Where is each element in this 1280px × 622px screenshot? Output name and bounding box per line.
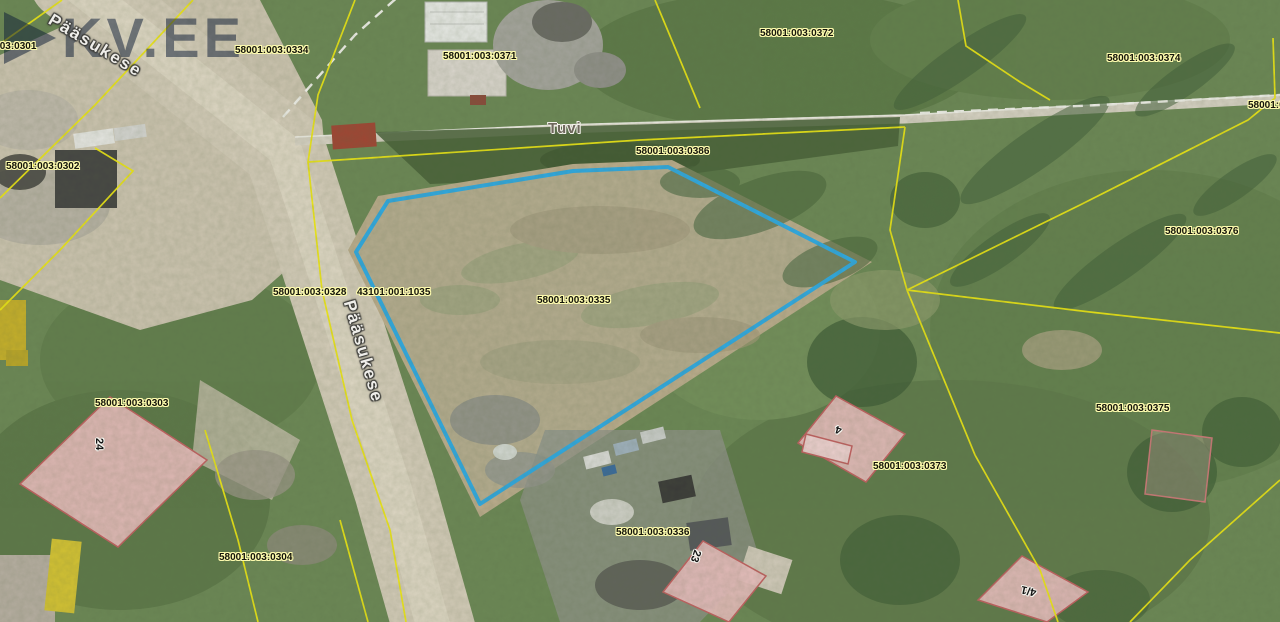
parcel-code-label: 58001:003:0373 (873, 461, 946, 472)
street-name-label: Pääsukese (339, 298, 387, 405)
house-number-label: 4 (834, 423, 843, 436)
parcel-code-label: 43101:001:1035 (357, 287, 430, 298)
parcel-code-label: 58001:003:0386 (636, 146, 709, 157)
parcel-code-label: 58001:003:0374 (1107, 53, 1180, 64)
parcel-code-label: 58001:003:0336 (616, 527, 689, 538)
parcel-code-label: 58001:003:0303 (95, 398, 168, 409)
parcel-code-label: 58001:003:0371 (443, 51, 516, 62)
house-number-label: 4/1 (1020, 583, 1037, 598)
parcel-code-label: 58001:003:0301 (0, 41, 36, 52)
parcel-code-label: 58001:0 (1248, 100, 1280, 111)
house-number-label: 23 (688, 548, 703, 563)
parcel-code-label: 58001:003:0334 (235, 45, 308, 56)
parcel-code-label: 58001:003:0304 (219, 552, 292, 563)
parcel-code-label: 58001:003:0302 (6, 161, 79, 172)
parcel-code-label: 58001:003:0375 (1096, 403, 1169, 414)
house-number-label: 24 (93, 438, 105, 450)
parcel-code-label: 58001:003:0372 (760, 28, 833, 39)
aerial-map-canvas[interactable]: KV.EE 58001:003:030158001:003:033458001:… (0, 0, 1280, 622)
parcel-code-label: 58001:003:0335 (537, 295, 610, 306)
street-name-label: Tuvi (548, 120, 582, 137)
parcel-code-label: 58001:003:0328 (273, 287, 346, 298)
parcel-code-label: 58001:003:0376 (1165, 226, 1238, 237)
map-labels-layer: 58001:003:030158001:003:033458001:003:03… (0, 0, 1280, 622)
street-name-label: Pääsukese (45, 10, 146, 82)
